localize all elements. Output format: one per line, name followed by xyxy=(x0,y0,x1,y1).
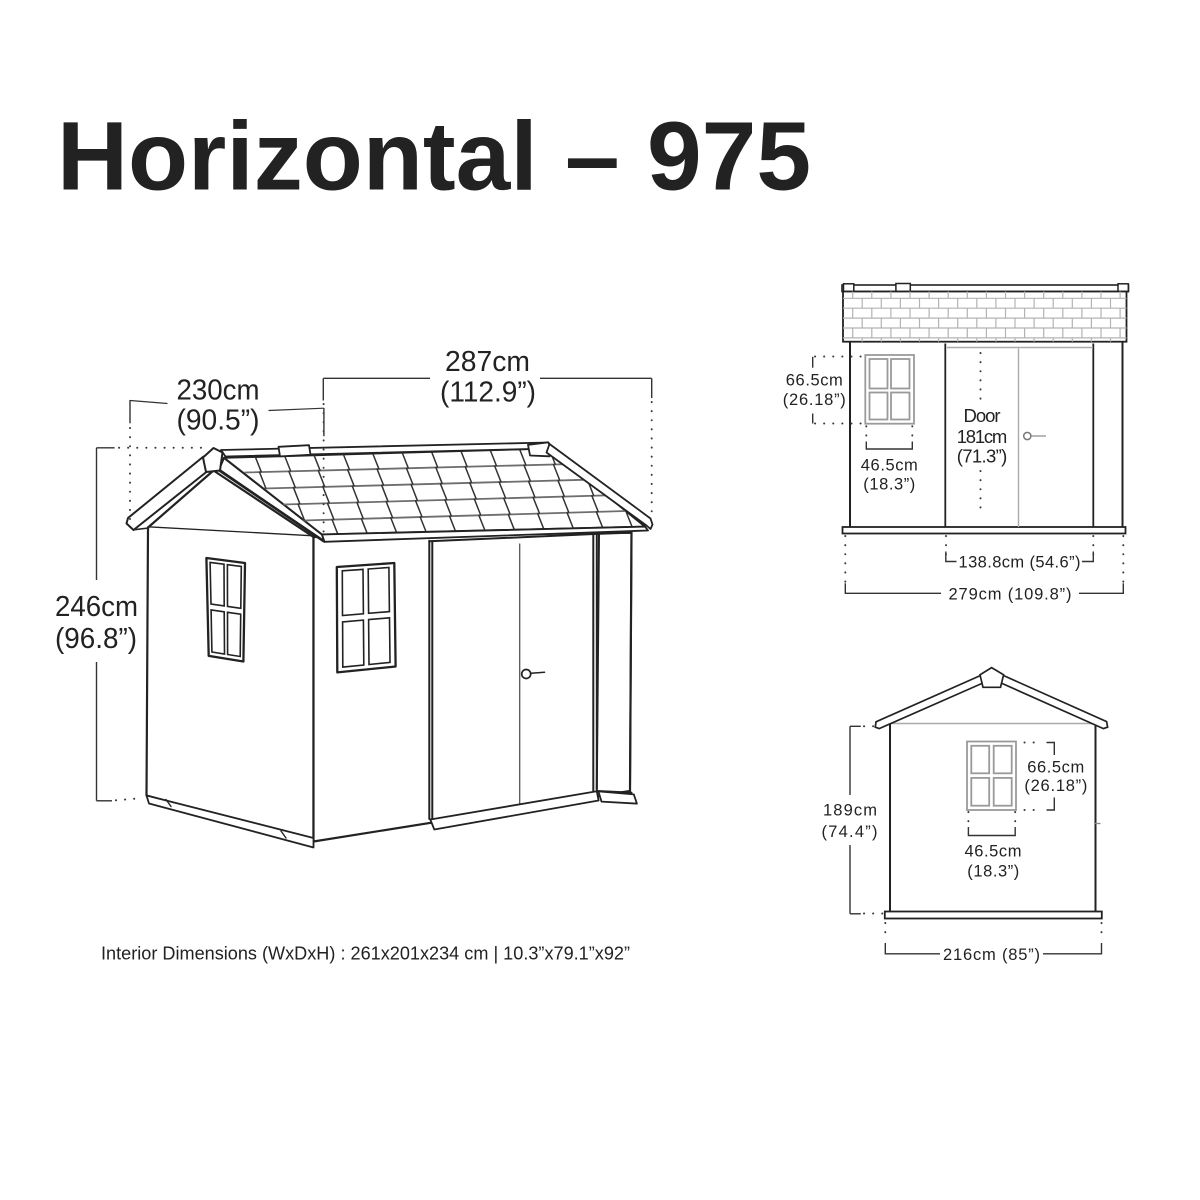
svg-text:230cm: 230cm xyxy=(177,375,260,407)
svg-text:279cm (109.8”): 279cm (109.8”) xyxy=(949,585,1072,603)
svg-text:66.5cm: 66.5cm xyxy=(1027,759,1084,777)
svg-text:(26.18”): (26.18”) xyxy=(1024,777,1087,795)
svg-text:(74.4”): (74.4”) xyxy=(822,823,878,841)
svg-text:46.5cm: 46.5cm xyxy=(965,843,1022,861)
svg-text:Interior Dimensions (WxDxH) :: Interior Dimensions (WxDxH) : 261x201x23… xyxy=(101,943,630,964)
svg-text:66.5cm: 66.5cm xyxy=(786,371,843,389)
svg-text:(71.3”): (71.3”) xyxy=(957,446,1008,467)
svg-text:181cm: 181cm xyxy=(957,426,1008,447)
svg-text:287cm: 287cm xyxy=(445,346,530,378)
svg-text:216cm (85”): 216cm (85”) xyxy=(943,946,1040,964)
svg-text:189cm: 189cm xyxy=(823,802,877,820)
svg-text:(90.5”): (90.5”) xyxy=(177,405,260,437)
svg-text:Horizontal – 975: Horizontal – 975 xyxy=(57,102,811,211)
svg-text:Door: Door xyxy=(964,405,1001,426)
svg-text:46.5cm: 46.5cm xyxy=(861,456,918,474)
svg-text:246cm: 246cm xyxy=(55,591,138,623)
svg-text:(112.9”): (112.9”) xyxy=(440,377,536,409)
svg-text:(18.3”): (18.3”) xyxy=(863,475,915,493)
svg-text:(18.3”): (18.3”) xyxy=(967,863,1019,881)
svg-text:138.8cm (54.6”): 138.8cm (54.6”) xyxy=(959,553,1081,571)
svg-text:(26.18”): (26.18”) xyxy=(783,391,846,409)
svg-text:(96.8”): (96.8”) xyxy=(55,623,137,655)
